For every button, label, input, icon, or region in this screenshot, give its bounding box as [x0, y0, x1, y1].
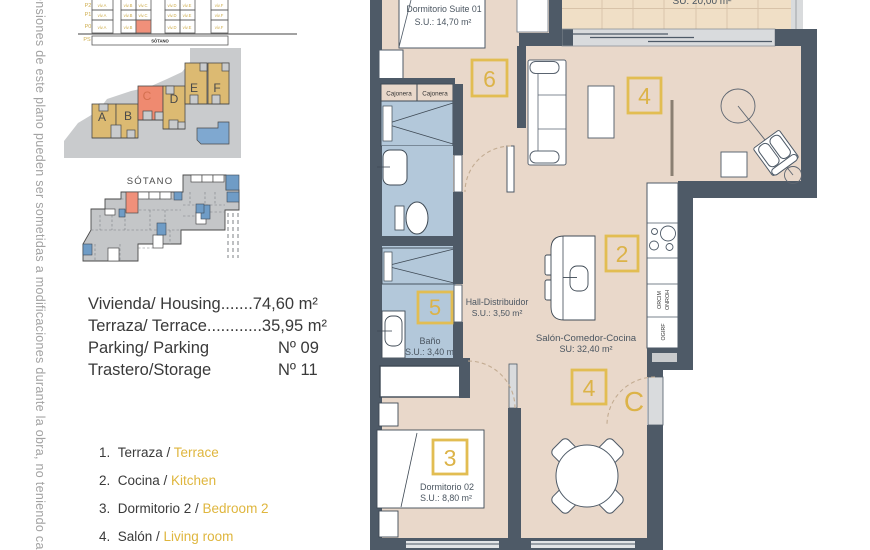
svg-text:SU: 32,40 m²: SU: 32,40 m² — [559, 344, 612, 354]
svg-text:S.U.: 8,80 m²: S.U.: 8,80 m² — [420, 493, 472, 503]
svg-text:S.U.: 3,50 m²: S.U.: 3,50 m² — [472, 308, 523, 318]
svg-text:viv.C: viv.C — [139, 13, 148, 18]
svg-text:viv.D: viv.D — [168, 3, 177, 8]
svg-text:P1: P1 — [85, 12, 92, 18]
svg-text:Dormitorio 02: Dormitorio 02 — [420, 482, 474, 492]
svg-text:1. Terraza / Terrace: 1. Terraza / Terrace — [99, 445, 219, 460]
svg-text:viv.A: viv.A — [98, 25, 107, 30]
svg-text:viv.B: viv.B — [124, 25, 133, 30]
svg-text:SÓTANO: SÓTANO — [151, 39, 169, 44]
svg-text:Terraza/ Terrace............35: Terraza/ Terrace............35,95 m² — [88, 317, 328, 335]
svg-text:5: 5 — [429, 295, 441, 320]
svg-text:viv.F: viv.F — [215, 25, 224, 30]
svg-text:SU: 20,00 m²: SU: 20,00 m² — [673, 0, 733, 7]
svg-text:A: A — [98, 110, 106, 124]
svg-text:viv.E: viv.E — [183, 13, 192, 18]
svg-text:viv.B: viv.B — [124, 13, 133, 18]
svg-text:Trastero/Storage: Trastero/Storage — [88, 361, 211, 379]
svg-text:Nº 11: Nº 11 — [278, 361, 318, 379]
svg-text:ensiones de este plano pueden: ensiones de este plano pueden ser someti… — [33, 0, 47, 550]
svg-text:4: 4 — [638, 83, 651, 109]
svg-text:ONROH: ONROH — [665, 290, 671, 310]
svg-text:2: 2 — [616, 241, 629, 267]
svg-text:ORCIM: ORCIM — [657, 291, 663, 309]
svg-text:P2: P2 — [85, 3, 92, 9]
svg-text:viv.D: viv.D — [168, 25, 177, 30]
svg-text:Baño: Baño — [419, 336, 440, 346]
svg-text:Vivienda/ Housing.......74,60: Vivienda/ Housing.......74,60 m² — [88, 295, 318, 313]
svg-text:viv.D: viv.D — [168, 13, 177, 18]
svg-text:4. Salón / Living room: 4. Salón / Living room — [99, 529, 233, 544]
svg-text:S.U.: 14,70 m²: S.U.: 14,70 m² — [415, 17, 472, 27]
svg-text:OGIRF: OGIRF — [661, 323, 667, 341]
svg-text:Dormitorio Suite 01: Dormitorio Suite 01 — [406, 4, 481, 14]
svg-text:SÓTANO: SÓTANO — [127, 176, 174, 187]
svg-text:viv.A: viv.A — [98, 3, 107, 8]
svg-text:S.U.: 3,40 m²: S.U.: 3,40 m² — [405, 347, 457, 357]
svg-text:viv.F: viv.F — [215, 3, 224, 8]
svg-text:6: 6 — [483, 66, 496, 92]
svg-text:E: E — [190, 81, 198, 95]
svg-text:Nº 09: Nº 09 — [278, 339, 319, 357]
svg-text:viv.A: viv.A — [98, 13, 107, 18]
svg-text:Salón-Comedor-Cocina: Salón-Comedor-Cocina — [536, 333, 637, 344]
svg-text:Cajonera: Cajonera — [422, 91, 448, 98]
svg-text:PS: PS — [83, 37, 91, 43]
svg-text:F: F — [213, 81, 220, 95]
svg-text:C: C — [624, 386, 644, 417]
svg-text:4: 4 — [583, 375, 596, 401]
svg-text:B: B — [124, 109, 132, 123]
svg-text:viv.E: viv.E — [183, 3, 192, 8]
svg-text:Hall-Distribuidor: Hall-Distribuidor — [466, 297, 529, 307]
svg-text:3: 3 — [444, 445, 457, 471]
svg-text:3. Dormitorio 2 / Bedroom 2: 3. Dormitorio 2 / Bedroom 2 — [99, 501, 269, 516]
svg-text:viv.F: viv.F — [215, 13, 224, 18]
svg-text:C: C — [143, 89, 152, 103]
svg-text:Parking/ Parking: Parking/ Parking — [88, 339, 209, 357]
svg-text:viv.B: viv.B — [124, 3, 133, 8]
svg-text:viv.E: viv.E — [183, 25, 192, 30]
svg-text:Cajonera: Cajonera — [386, 91, 412, 98]
svg-text:P0: P0 — [85, 24, 92, 30]
svg-text:viv.C: viv.C — [139, 3, 148, 8]
svg-text:D: D — [170, 92, 179, 106]
svg-text:2. Cocina / Kitchen: 2. Cocina / Kitchen — [99, 473, 216, 488]
